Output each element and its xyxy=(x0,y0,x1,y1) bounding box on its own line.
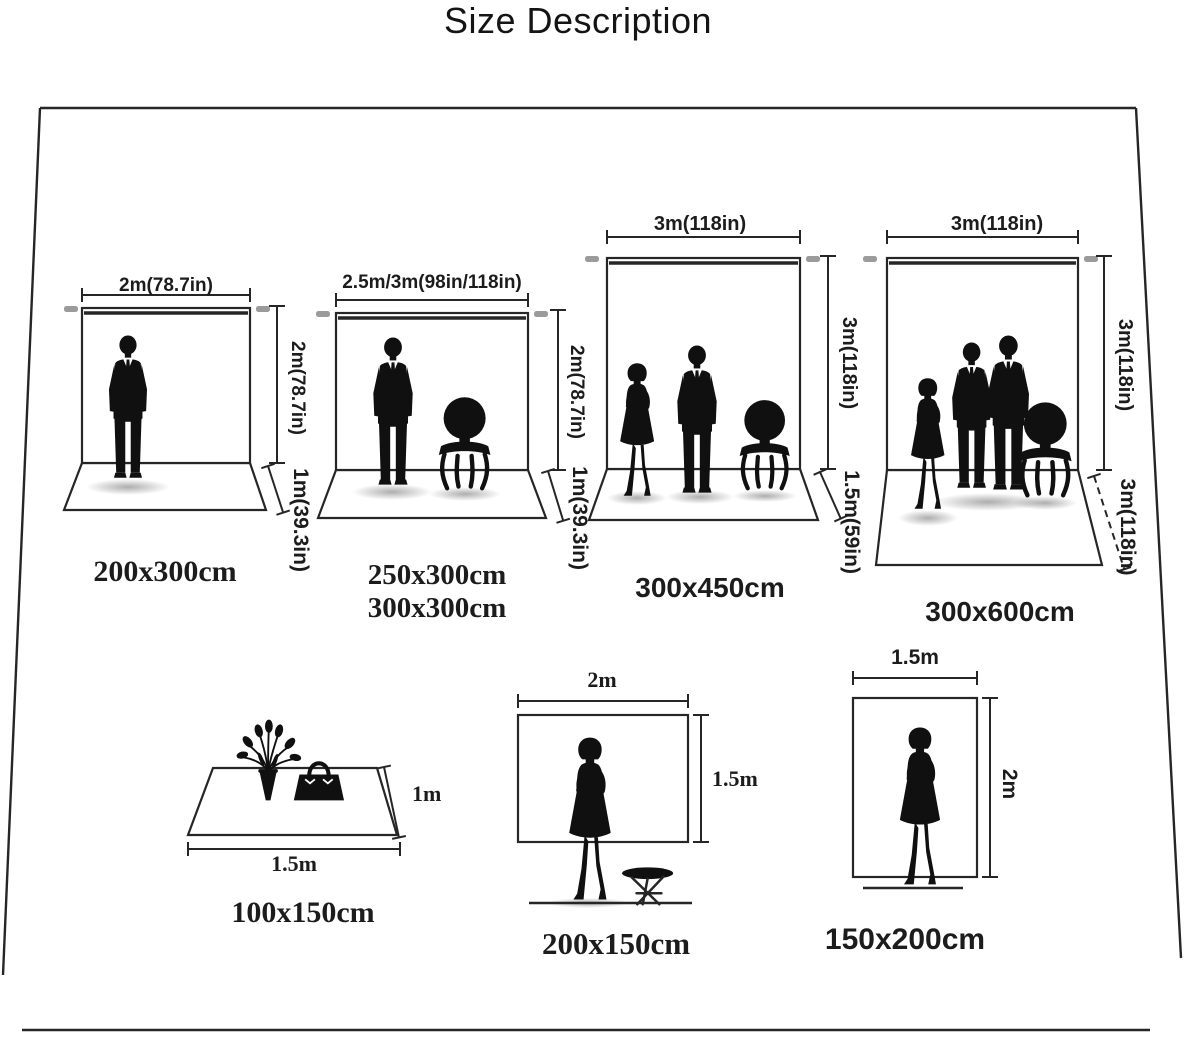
size-description-diagram: Size Description 2m(78.7in) 2m(78.7in) 1… xyxy=(0,0,1186,1037)
backdrop-300x600 xyxy=(863,230,1131,571)
backdrop-1-floor-label: 1m(39.3in) xyxy=(289,468,311,572)
backdrop-3-caption: 300x450cm xyxy=(635,573,784,602)
backdrop-200x150 xyxy=(518,694,709,908)
backdrop-1-height-label: 2m(78.7in) xyxy=(287,341,307,435)
backdrop-1-caption: 200x300cm xyxy=(93,556,236,588)
backdrop-200x150-width-label: 2m xyxy=(587,668,616,691)
backdrop-4-height-label: 3m(118in) xyxy=(1114,319,1135,411)
backdrop-3-floor-label: 1.5m(59in) xyxy=(840,470,862,574)
backdrop-4-caption: 300x600cm xyxy=(925,597,1074,626)
backdrop-200x300 xyxy=(64,288,290,515)
folding-stool-silhouette xyxy=(622,867,673,904)
backdrop-4-floor-label: 3m(118in) xyxy=(1116,479,1138,576)
mat-height-label: 1m xyxy=(412,782,441,805)
backdrop-2-width-label: 2.5m/3m(98in/118in) xyxy=(342,273,522,293)
backdrop-200x150-height-label: 1.5m xyxy=(712,767,758,790)
backdrop-1-width-label: 2m(78.7in) xyxy=(119,276,213,296)
backdrop-250x300 xyxy=(316,293,570,523)
backdrop-150x200-width-label: 1.5m xyxy=(891,647,939,669)
backdrop-2-caption-2: 300x300cm xyxy=(368,593,507,623)
mat-caption: 100x150cm xyxy=(231,897,374,929)
size-diagram-art xyxy=(0,0,1186,1037)
backdrop-300x450 xyxy=(585,230,847,521)
mat-100x150 xyxy=(188,720,406,856)
backdrop-150x200 xyxy=(853,671,998,888)
backdrop-4-width-label: 3m(118in) xyxy=(951,214,1043,235)
backdrop-200x150-caption: 200x150cm xyxy=(542,928,690,961)
backdrop-3-width-label: 3m(118in) xyxy=(654,214,746,235)
backdrop-2-floor-label: 1m(39.3in) xyxy=(568,466,590,570)
backdrop-3-height-label: 3m(118in) xyxy=(838,317,859,409)
page-title: Size Description xyxy=(444,2,712,40)
mat-width-label: 1.5m xyxy=(271,852,317,875)
backdrop-2-height-label: 2m(78.7in) xyxy=(566,345,586,439)
backdrop-150x200-height-label: 2m xyxy=(998,769,1020,799)
backdrop-150x200-caption: 150x200cm xyxy=(825,924,985,956)
backdrop-2-caption: 250x300cm xyxy=(368,560,507,590)
